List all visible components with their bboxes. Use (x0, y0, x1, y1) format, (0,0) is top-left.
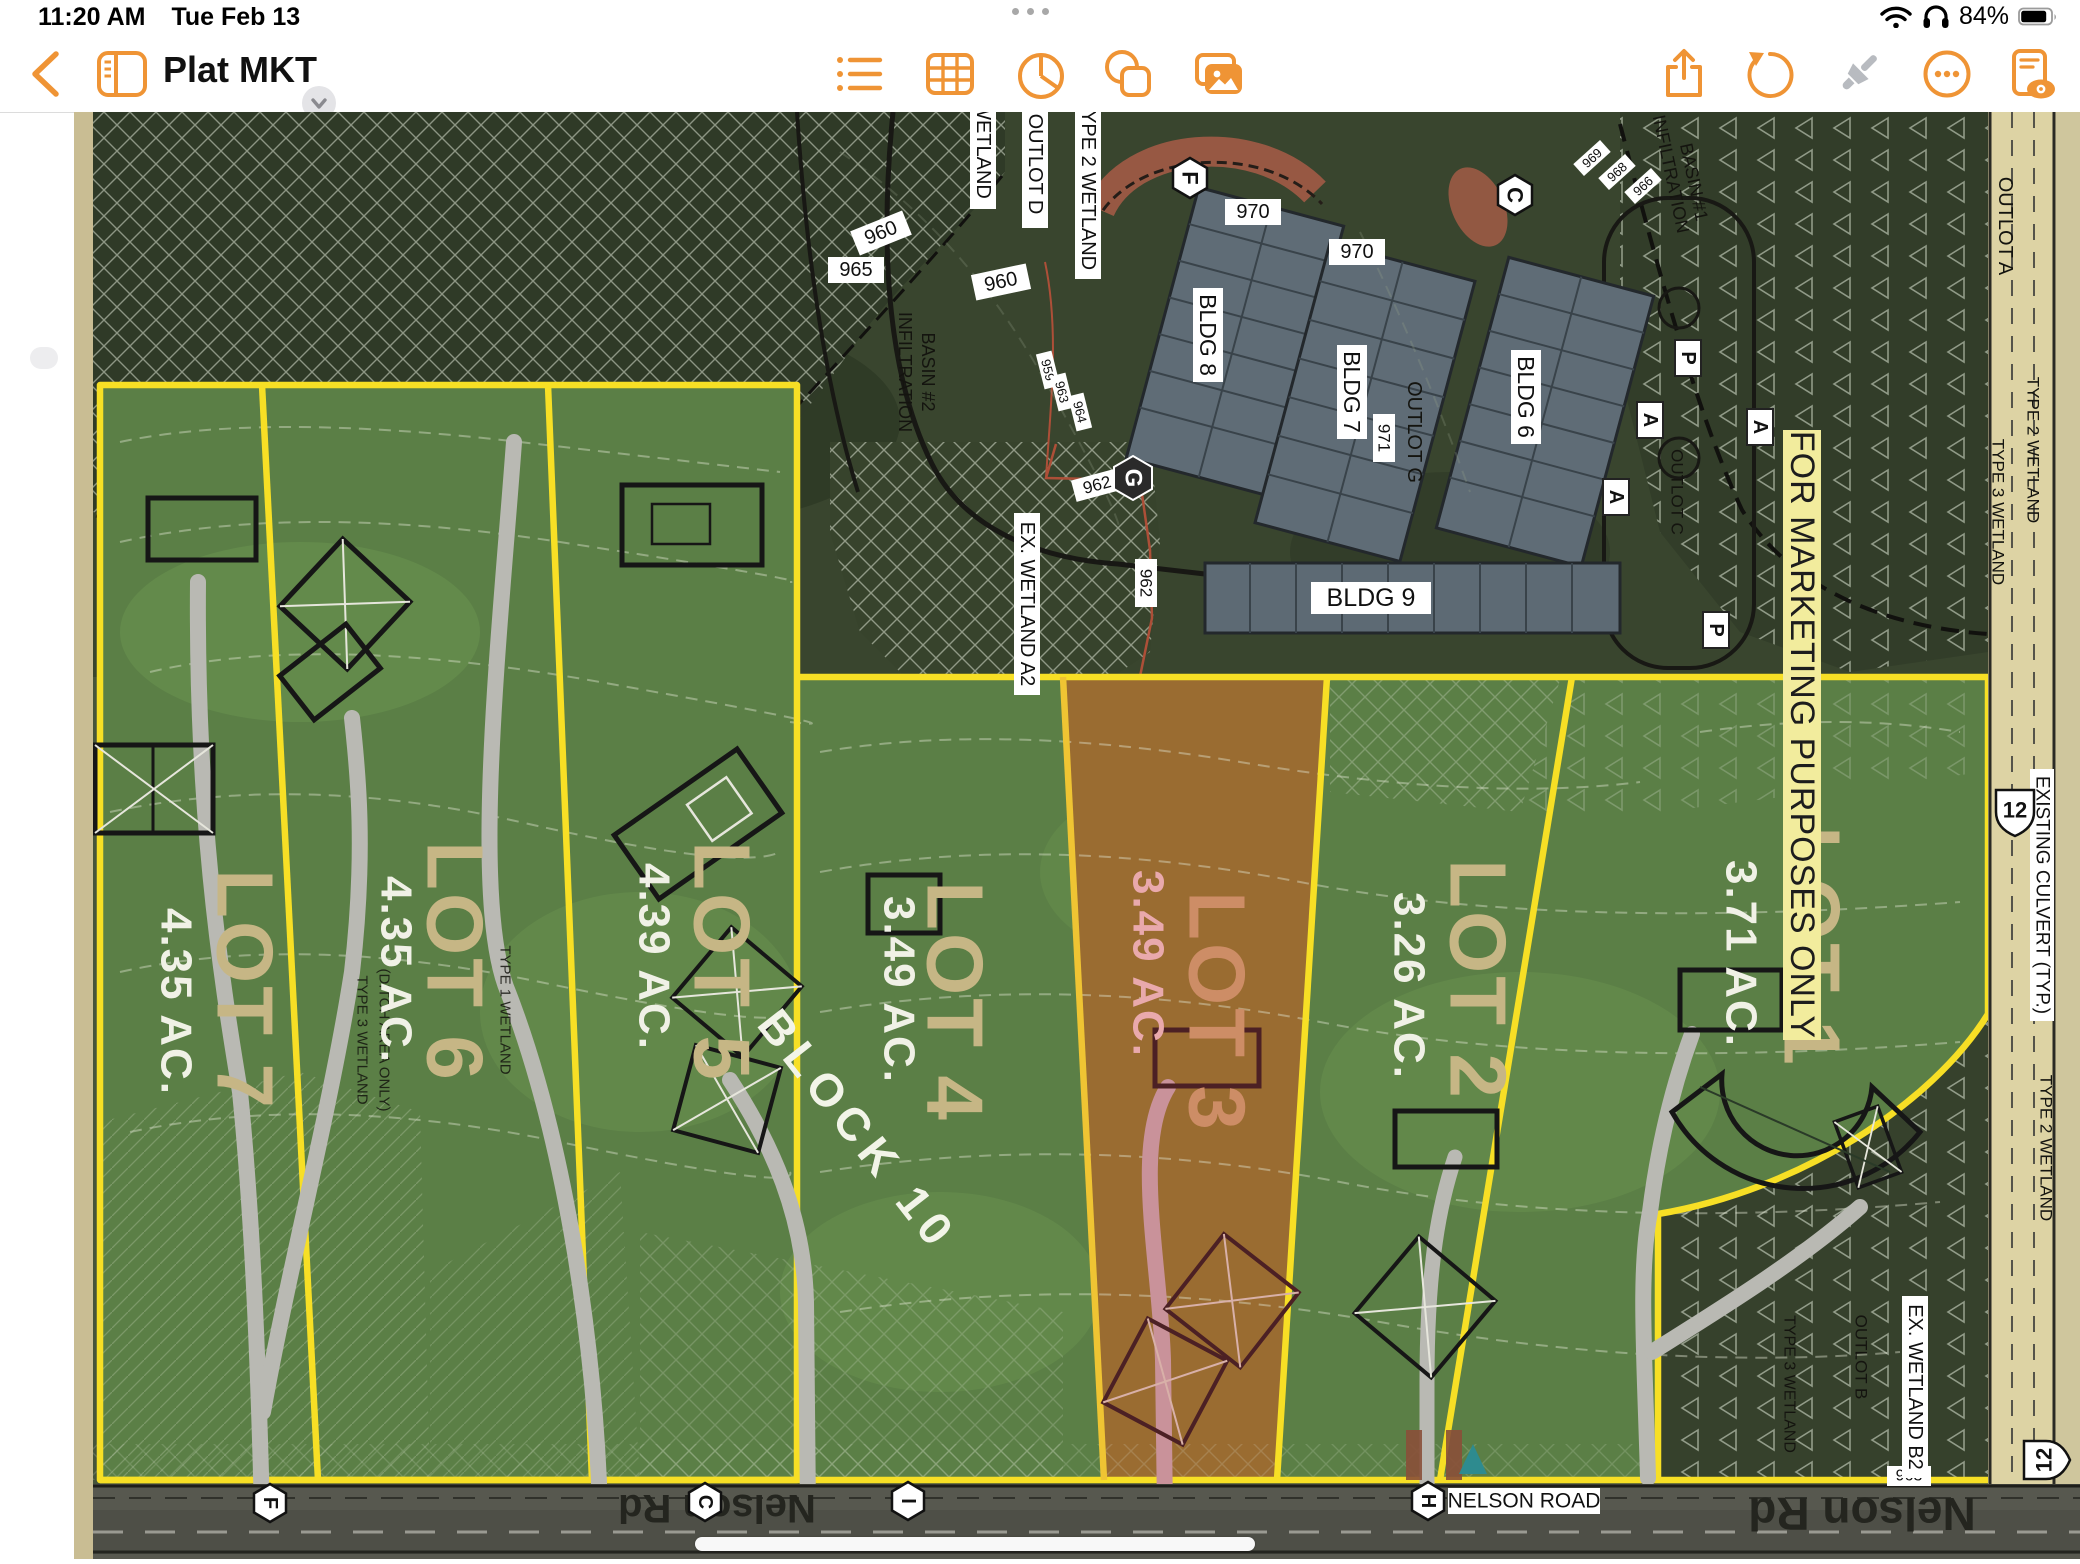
multitasking-dots-icon[interactable] (1012, 8, 1049, 15)
marketing-banner: FOR MARKETING PURPOSES ONLY (1783, 430, 1821, 1040)
lot5-acreage: 4.39 AC. (630, 863, 679, 1051)
bldg8-label: BLDG 8 (1195, 294, 1221, 376)
route-12: 12 (2032, 1448, 2057, 1472)
document-title[interactable]: Plat MKT (163, 28, 317, 112)
ex-wetland-b2-label: EX. WETLAND B2 (1904, 1304, 1926, 1470)
media-icon[interactable] (1190, 46, 1246, 102)
shapes-icon[interactable] (1100, 46, 1156, 102)
ditch-wetland-label: TYPE 3 WETLAND (354, 975, 371, 1104)
lot5-name: LOT 5 (678, 841, 767, 1083)
share-icon[interactable] (1656, 46, 1712, 102)
lot6-acreage: 4.35 AC. (372, 876, 421, 1064)
outlot-d-label: OUTLOT D (1024, 114, 1046, 215)
ex-wetland-a2-label: EX. WETLAND A2 (1016, 522, 1038, 687)
lot6-name: LOT 6 (411, 841, 500, 1083)
marker-p: P (1677, 351, 1699, 364)
wifi-icon (1879, 4, 1913, 30)
road-marker-h: H (1417, 1494, 1439, 1508)
bldg7-label: BLDG 7 (1339, 351, 1365, 433)
outlot-c-label: OUTLOT C (1668, 449, 1687, 535)
format-brush-icon[interactable] (1830, 46, 1886, 102)
bldg6-label: BLDG 6 (1513, 356, 1539, 438)
type2-wetland-label: TYPE 2 WETLAND (1077, 112, 1099, 270)
nelson-rd-street-label-2: Nelson Rd (1748, 1488, 1975, 1540)
back-icon[interactable] (22, 46, 78, 102)
status-time: 11:20 AM (38, 3, 145, 31)
plat-map-canvas[interactable]: WETLAND OUTLOT D TYPE 2 WETLAND 970 970 … (0, 112, 2080, 1559)
toolbar: Plat MKT (0, 28, 2080, 112)
status-bar: 11:20 AMTue Feb 13 84% (0, 0, 2080, 28)
bldg9-label: BLDG 9 (1327, 584, 1416, 612)
sidebar-icon[interactable] (94, 46, 150, 102)
battery-icon (2018, 7, 2058, 27)
marker-f: F (1178, 171, 1203, 184)
lot1-acreage: 3.71 AC. (1717, 860, 1766, 1048)
elevation-970: 970 (1236, 201, 1269, 223)
elevation-962: 962 (1137, 569, 1156, 597)
lot2-acreage: 3.26 AC. (1385, 892, 1434, 1080)
list-icon[interactable] (831, 46, 887, 102)
marketing-banner-text: FOR MARKETING PURPOSES ONLY (1783, 431, 1821, 1039)
road-marker-f: F (259, 1497, 281, 1509)
marker-a: A (1749, 420, 1771, 434)
road-marker-i: I (897, 1498, 919, 1504)
status-date: Tue Feb 13 (171, 3, 300, 31)
outlot-g-label: OUTLOT G (1403, 381, 1425, 483)
lot7-name: LOT 7 (201, 869, 290, 1111)
chart-icon[interactable] (1013, 46, 1069, 102)
table-icon[interactable] (922, 46, 978, 102)
outlot-a-label: OUTLOT A (1994, 177, 2016, 276)
road-marker-c: C (694, 1495, 716, 1509)
elevation-970: 970 (1340, 241, 1373, 263)
reading-view-icon[interactable] (2004, 46, 2060, 102)
marker-a: A (1605, 490, 1627, 504)
undo-icon[interactable] (1742, 46, 1798, 102)
infiltration-label: INFILTRATION (895, 312, 915, 432)
marker-c: C (1503, 187, 1528, 203)
margin-handle[interactable] (30, 347, 58, 369)
plat-map-svg: WETLAND OUTLOT D TYPE 2 WETLAND 970 970 … (0, 112, 2080, 1559)
headphones-icon (1922, 4, 1950, 30)
marker-p: P (1705, 623, 1727, 636)
battery-percent: 84% (1959, 2, 2009, 31)
lot4-acreage: 3.49 AC. (875, 896, 924, 1084)
lot7-acreage: 4.35 AC. (152, 908, 201, 1096)
lot3-acreage: 3.49 AC. (1124, 870, 1173, 1058)
route-12: 12 (2003, 798, 2027, 823)
type2-wetland-right-label: TYPE 2 WETLAND (2024, 377, 2043, 523)
marker-g: G (1120, 469, 1147, 488)
home-indicator[interactable] (695, 1537, 1255, 1551)
outlot-b-label: OUTLOT B (1852, 1315, 1871, 1400)
lot3-name: LOT 3 (1173, 891, 1262, 1133)
marker-a: A (1639, 413, 1661, 427)
wetland-label: WETLAND (972, 112, 994, 199)
more-icon[interactable] (1919, 46, 1975, 102)
elevation-965: 965 (839, 259, 872, 281)
type3-wetland-br-label: TYPE 3 WETLAND (1781, 1315, 1798, 1453)
elevation-971: 971 (1375, 424, 1394, 452)
basin2-label: BASIN #2 (918, 332, 938, 411)
nelson-road-label: NELSON ROAD (1448, 1490, 1601, 1513)
lot2-name: LOT 2 (1434, 859, 1523, 1101)
page-margin (0, 112, 93, 1559)
type3-wetland-right-label: TYPE 3 WETLAND (1989, 439, 2008, 585)
type2-wetland-lower-label: TYPE 2 WETLAND (2037, 1075, 2056, 1221)
